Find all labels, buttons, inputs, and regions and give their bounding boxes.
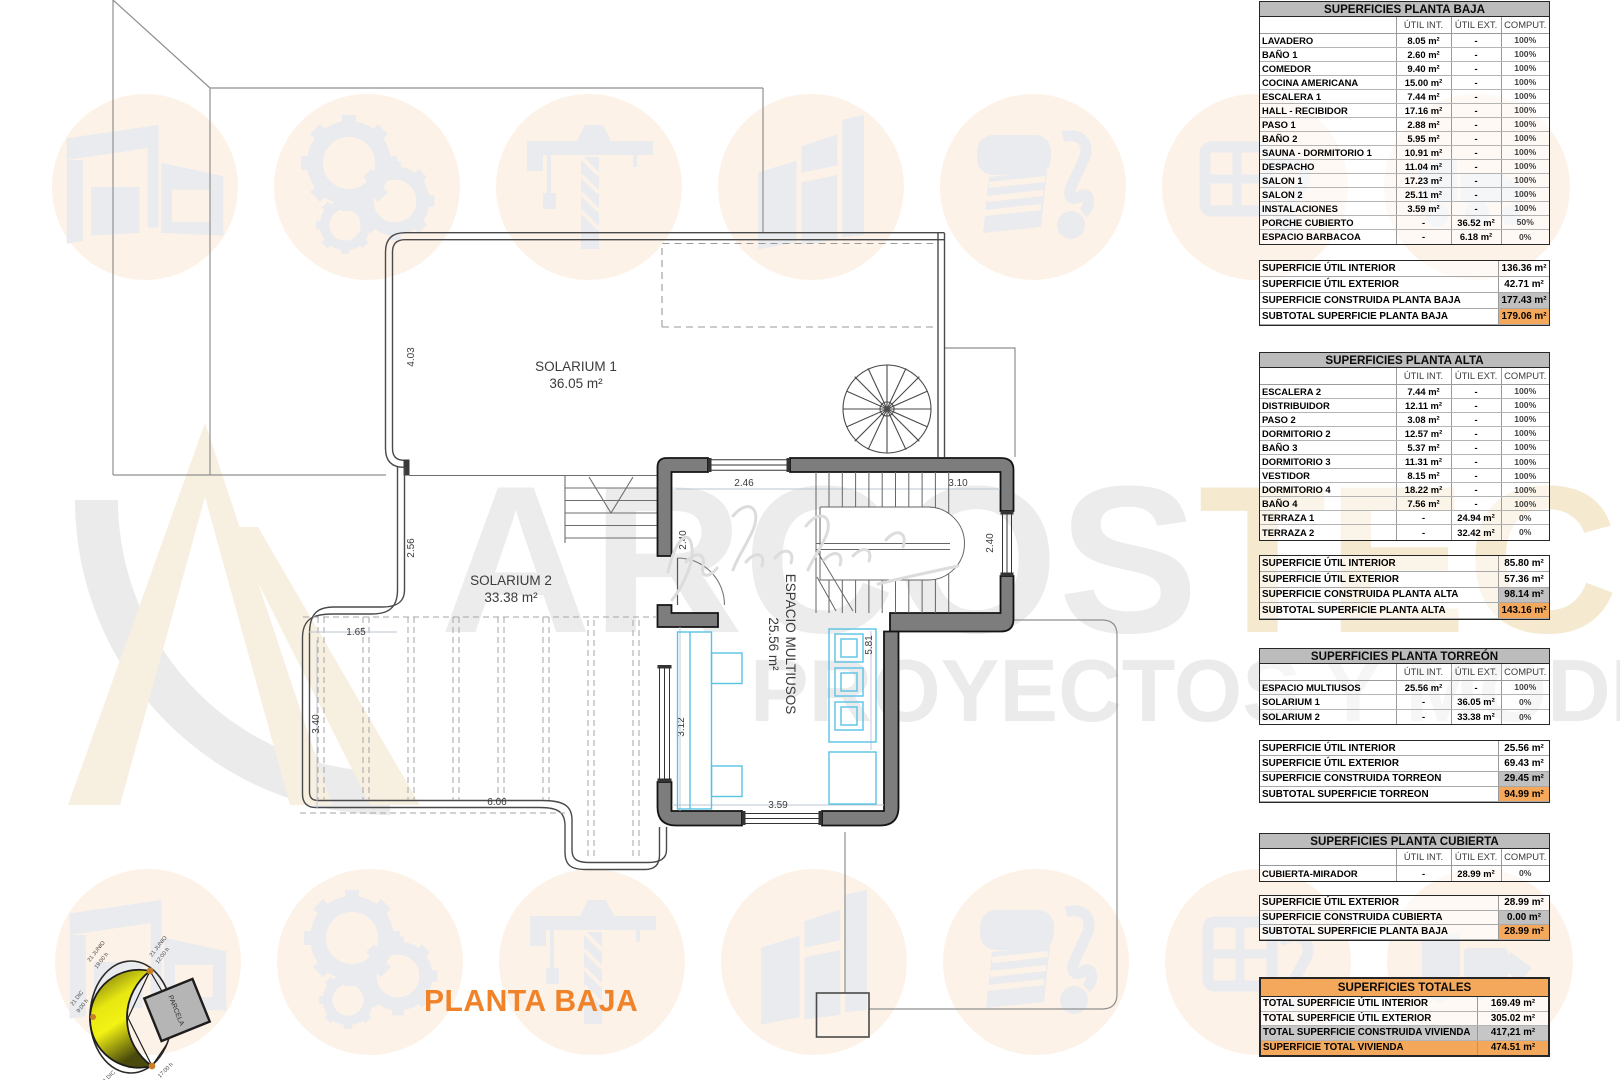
svg-text:17:00 h: 17:00 h	[157, 1062, 174, 1079]
svg-text:21 DIC: 21 DIC	[100, 1070, 117, 1080]
